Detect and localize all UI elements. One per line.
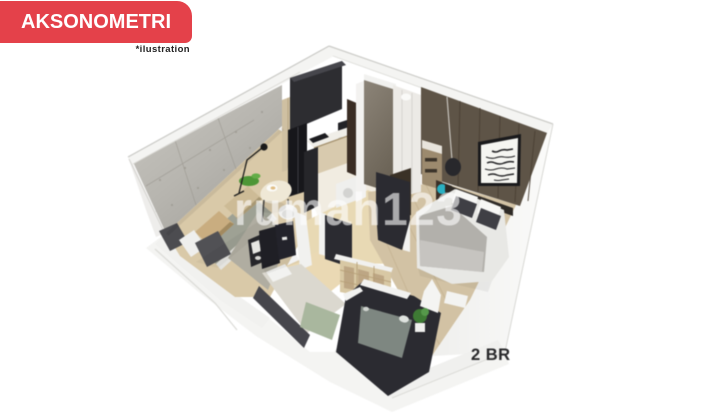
svg-text:2 BR: 2 BR: [471, 346, 511, 364]
svg-text:rumah123: rumah123: [234, 183, 463, 235]
